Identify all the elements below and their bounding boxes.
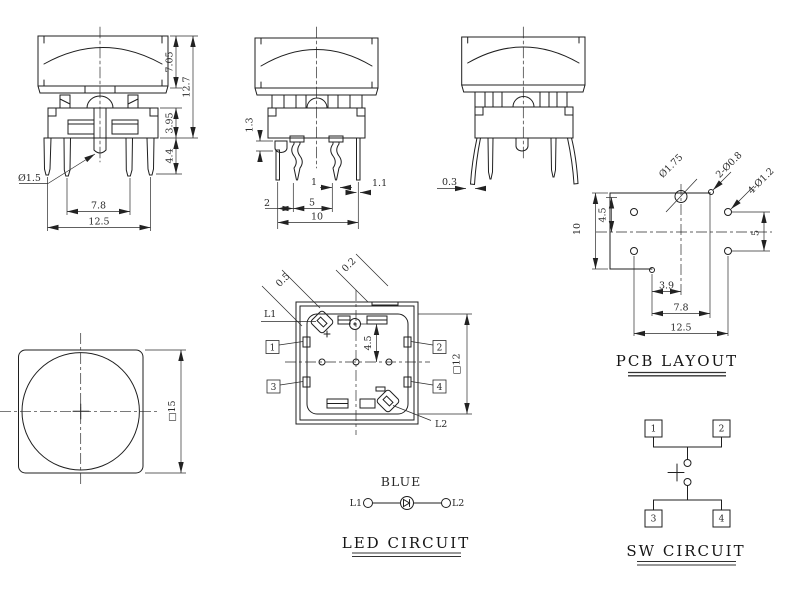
view-side-b bbox=[255, 27, 378, 180]
pin bbox=[471, 138, 481, 185]
contact-pin bbox=[292, 142, 297, 180]
dim-pin-width: 1 bbox=[311, 177, 317, 188]
dim-pin-dia: Ø1.5 bbox=[18, 173, 41, 184]
dim-offset: 2 bbox=[264, 198, 270, 209]
contact-pin bbox=[331, 142, 336, 180]
led-circuit-title: LED CIRCUIT bbox=[342, 534, 470, 552]
dim-inner-pitch: 7.8 bbox=[91, 201, 106, 212]
dim-pin-length: 4.4 bbox=[165, 148, 176, 163]
sw-terminal-1: 1 bbox=[651, 425, 657, 435]
sw-circuit-title: SW CIRCUIT bbox=[626, 542, 745, 560]
drawing-svg: 7.05 12.7 3.95 4.4 Ø1.5 7.8 12.5 bbox=[0, 0, 800, 600]
led-symbol bbox=[401, 497, 414, 510]
cap-dome bbox=[44, 48, 162, 65]
sw-contact bbox=[684, 460, 691, 467]
top-terminal-1: 1 bbox=[270, 344, 276, 354]
dim-front-size: □15 bbox=[167, 400, 178, 421]
top-led1-label: L1 bbox=[264, 309, 276, 320]
sw-terminal-3: 3 bbox=[651, 515, 657, 525]
top-led2-label: L2 bbox=[435, 419, 447, 430]
dim-pin-width-right: 1.1 bbox=[372, 178, 387, 189]
dim-top-notch: 0.2 bbox=[340, 256, 358, 274]
dim-top-size: □12 bbox=[452, 353, 463, 374]
boss bbox=[275, 141, 287, 153]
pcb-dim-top-offset: 4.5 bbox=[598, 207, 609, 222]
led-terminal-l1 bbox=[364, 499, 373, 508]
pcb-dim-height: 10 bbox=[572, 223, 583, 235]
dim-body-height: 3.95 bbox=[165, 112, 176, 133]
pcb-mount-hole bbox=[631, 209, 638, 216]
pcb-mount-hole bbox=[631, 248, 638, 255]
switch-body bbox=[48, 108, 158, 138]
pin bbox=[551, 138, 556, 177]
pcb-title-underline bbox=[628, 373, 726, 376]
pcb-callout-main: Ø1.75 bbox=[657, 152, 685, 180]
dim-contact-pitch: 5 bbox=[309, 198, 315, 209]
pcb-mount-hole bbox=[725, 209, 732, 216]
pcb-mount-hole bbox=[725, 248, 732, 255]
dim-boss-height: 1.3 bbox=[245, 117, 256, 132]
pcb-layout bbox=[610, 190, 732, 273]
view-front-dims bbox=[0, 333, 186, 486]
dim-outer-pitch: 12.5 bbox=[88, 217, 109, 228]
view-side-a bbox=[38, 27, 168, 176]
pcb-callout-mount: 4-Ø1.2 bbox=[746, 166, 777, 197]
pin bbox=[568, 138, 579, 184]
pin bbox=[44, 138, 51, 175]
sw-circuit bbox=[645, 420, 730, 527]
pin bbox=[147, 138, 154, 175]
led-terminal-l2 bbox=[442, 499, 451, 508]
center-shaft bbox=[516, 138, 528, 151]
plunger-center bbox=[350, 319, 361, 330]
pcb-callout-led: 2-Ø0.8 bbox=[714, 150, 745, 181]
led-title-underline bbox=[352, 553, 461, 557]
sw-contact bbox=[684, 479, 691, 486]
sw-terminal-2: 2 bbox=[719, 425, 725, 435]
top-terminal-3: 3 bbox=[271, 383, 277, 393]
pin bbox=[276, 150, 280, 180]
top-terminal-4: 4 bbox=[437, 383, 443, 393]
dim-top-center-offset: 4.5 bbox=[363, 335, 374, 350]
view-top bbox=[296, 302, 418, 424]
pcb-layout-title: PCB LAYOUT bbox=[616, 352, 738, 370]
pcb-dim-c: 12.5 bbox=[670, 323, 691, 334]
led-color-label: BLUE bbox=[381, 474, 421, 489]
sw-title-underline bbox=[637, 562, 736, 566]
dim-cap-height: 7.05 bbox=[165, 51, 176, 72]
dim-total-height: 12.7 bbox=[182, 76, 193, 97]
base-outline bbox=[296, 302, 418, 424]
led-circuit bbox=[364, 497, 451, 510]
led-l2-label: L2 bbox=[452, 498, 464, 509]
pin bbox=[126, 138, 133, 176]
dim-span: 10 bbox=[311, 212, 323, 223]
pcb-dim-b: 7.8 bbox=[673, 303, 688, 314]
cap-outline bbox=[38, 36, 168, 93]
view-side-c bbox=[462, 27, 585, 185]
dim-top-slot: 0.5 bbox=[274, 271, 292, 289]
pcb-dim-a: 3.9 bbox=[659, 281, 674, 292]
technical-drawing-page: 7.05 12.7 3.95 4.4 Ø1.5 7.8 12.5 bbox=[0, 0, 800, 600]
led-pad-l2 bbox=[376, 389, 400, 413]
pin bbox=[357, 138, 361, 180]
led-l1-label: L1 bbox=[350, 498, 362, 509]
top-terminal-2: 2 bbox=[437, 344, 443, 354]
pcb-dim-right-pitch: 5 bbox=[751, 230, 762, 236]
pin bbox=[488, 138, 493, 179]
sw-terminal-4: 4 bbox=[719, 515, 725, 525]
pcb-led-hole bbox=[650, 268, 655, 273]
dim-tip-thickness: 0.3 bbox=[442, 177, 457, 188]
pcb-led-hole bbox=[709, 190, 714, 195]
